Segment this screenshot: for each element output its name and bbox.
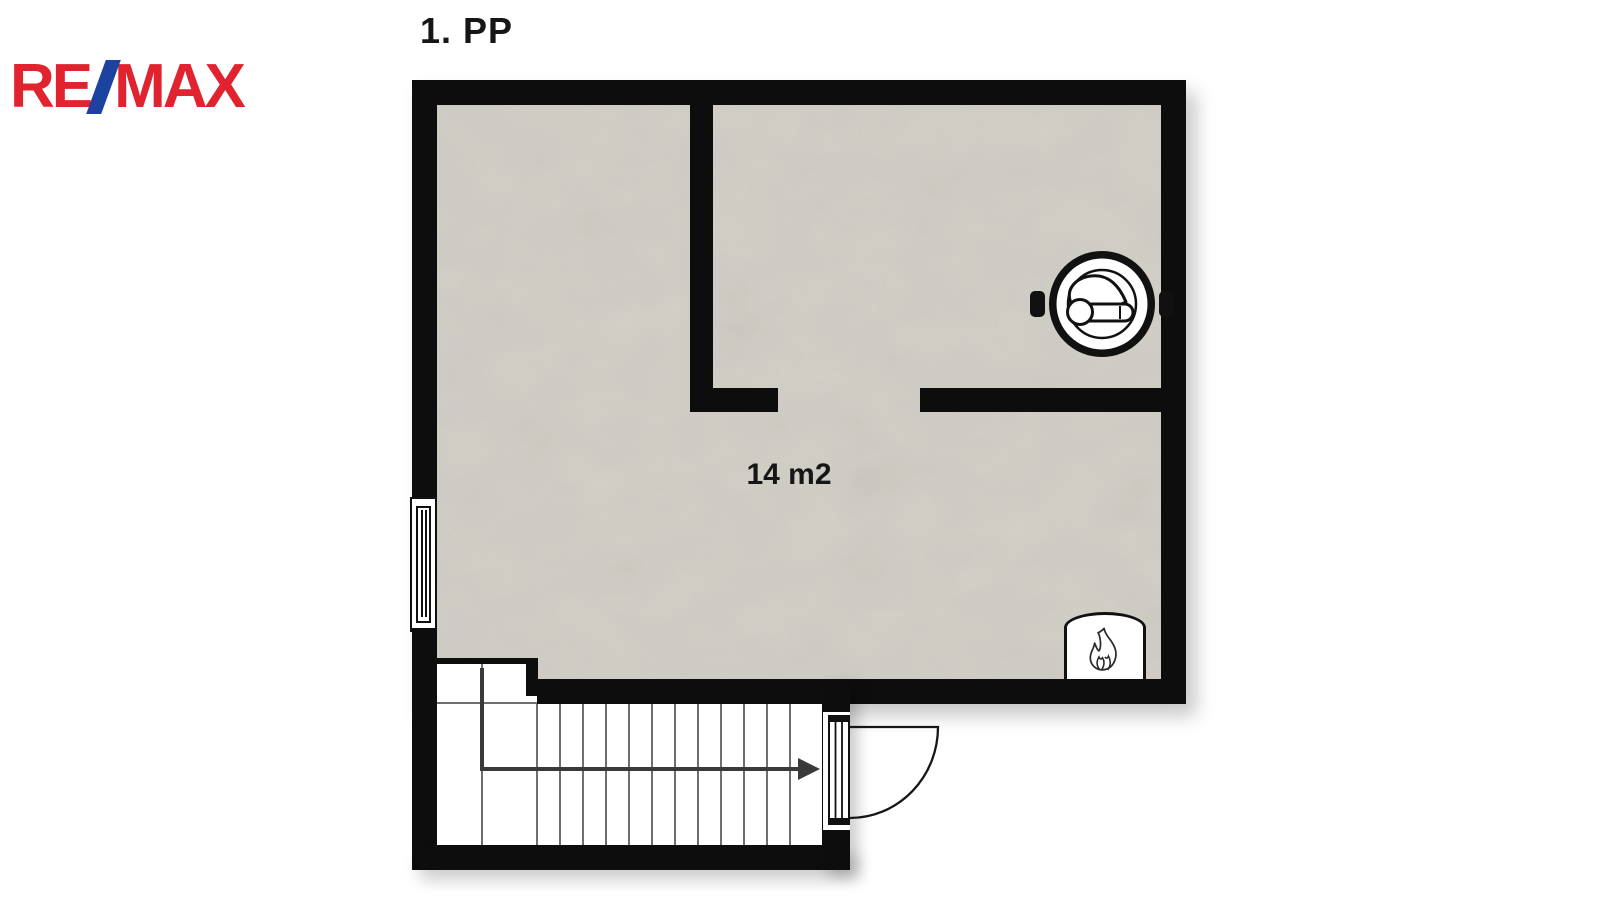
page: RE MAX 1. PP 14 m2 [0,0,1600,900]
landing-thin-wall [437,658,537,664]
room-area-label: 14 m2 [689,458,889,488]
floorplan: 14 m2 [412,80,1186,870]
partition-wall-horizontal [920,388,1161,412]
remax-logo: RE MAX [10,58,243,116]
door-opening [823,712,850,830]
window-glazing-line [425,510,427,617]
window-frame [416,506,431,623]
flame-icon [1086,626,1124,674]
partition-wall-foot [690,388,778,412]
landing-wall-connector [526,658,538,696]
boiler-icon [1028,246,1176,362]
logo-max: MAX [114,56,243,118]
floor-title: 1. PP [420,10,513,52]
logo-re: RE [10,56,90,118]
stairwell-bottom-wall [412,845,850,870]
stair-landing [437,664,537,845]
stairwell-left-wall [412,628,437,870]
stair-run [537,704,822,845]
window-symbol [410,497,437,632]
water-heater-box [1064,612,1146,679]
partition-wall-vertical [690,105,713,412]
window-glazing-line [421,510,423,617]
